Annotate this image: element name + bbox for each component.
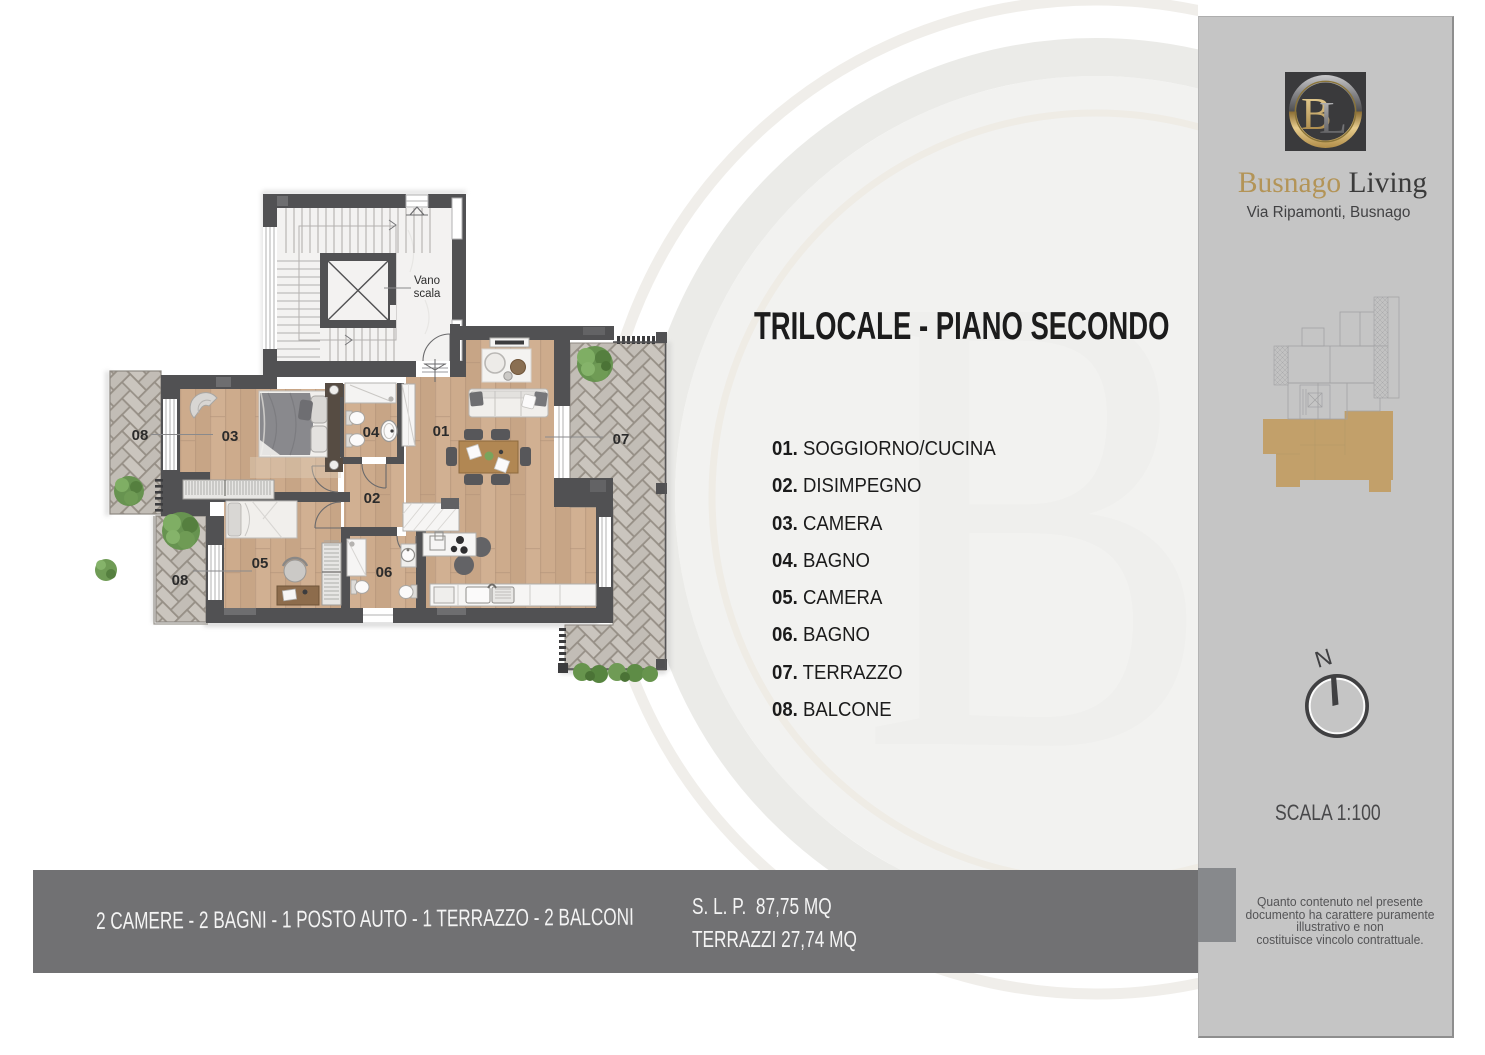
svg-text:Vano: Vano (414, 275, 440, 287)
svg-text:05: 05 (252, 555, 269, 572)
svg-text:N: N (1312, 643, 1336, 673)
svg-text:07: 07 (613, 431, 630, 448)
svg-text:08: 08 (172, 572, 189, 589)
svg-text:08: 08 (132, 427, 149, 444)
svg-text:04: 04 (363, 424, 380, 441)
svg-text:02: 02 (364, 490, 381, 507)
svg-text:L: L (1319, 92, 1347, 143)
svg-text:06: 06 (376, 564, 393, 581)
svg-text:03: 03 (222, 428, 239, 445)
svg-text:scala: scala (414, 288, 441, 300)
svg-text:01: 01 (433, 423, 450, 440)
